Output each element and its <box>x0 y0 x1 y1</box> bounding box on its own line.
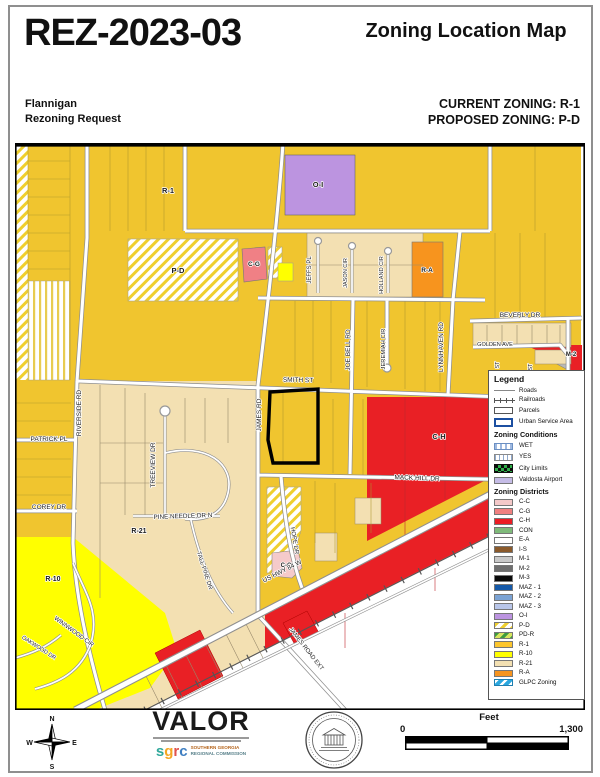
sgrc-logo-row: sgrc SOUTHERN GEORGIA REGIONAL COMMISSIO… <box>136 744 266 759</box>
map-label: R-10 <box>45 576 60 583</box>
legend-district-pd: P-D <box>494 622 582 629</box>
zoning-map-page: REZ-2023-03 Zoning Location Map Flanniga… <box>0 0 600 777</box>
map-label: JEFFS PL <box>307 256 313 284</box>
legend-item-parcels: Parcels <box>494 407 582 414</box>
legend-district-maz3: MAZ - 3 <box>494 603 582 610</box>
map-label: JAMES RD <box>256 398 263 431</box>
map-label: M-2 <box>566 352 577 358</box>
subject-parcel-outline <box>268 389 318 463</box>
map-label: JEREMIAH CIR <box>381 329 387 370</box>
proposed-zoning: PROPOSED ZONING: P-D <box>428 112 580 128</box>
legend-district-ch: C-H <box>494 518 582 525</box>
map-label: GOLDEN AVE <box>477 342 513 348</box>
map-label: PATRICK PL <box>31 436 68 443</box>
legend-district-cc: C-C <box>494 499 582 506</box>
legend-district-r21: R-21 <box>494 660 582 667</box>
applicant-block: Flannigan Rezoning Request <box>25 97 121 128</box>
map-label: RIVERSIDE RD <box>76 390 83 437</box>
legend: Legend Roads Railroads Parcels Urban Ser… <box>488 370 585 700</box>
map-label: COREY DR <box>32 504 66 511</box>
map-label: LYNNHAVEN RD <box>438 322 445 372</box>
map-label: R-A <box>421 267 433 274</box>
legend-district-pdr: PD-R <box>494 632 582 639</box>
current-zoning: CURRENT ZONING: R-1 <box>428 96 580 112</box>
legend-district-glpc: GLPC Zoning <box>494 679 582 686</box>
valor-logo: VALOR <box>136 708 266 735</box>
compass-w: W <box>26 740 33 747</box>
compass-s: S <box>50 764 55 771</box>
map-label: HOLLAND CIR <box>379 256 385 294</box>
legend-item-wet: WET <box>494 443 582 450</box>
legend-title: Legend <box>494 374 582 384</box>
legend-item-city-limits: City Limits <box>494 464 582 473</box>
legend-district-m3: M-3 <box>494 575 582 582</box>
city-limits-swatch <box>494 464 513 473</box>
sgrc-org-name: SOUTHERN GEORGIA REGIONAL COMMISSION <box>191 745 247 756</box>
legend-conditions-title: Zoning Conditions <box>494 430 582 439</box>
legend-district-maz1: MAZ - 1 <box>494 584 582 591</box>
page-title: Zoning Location Map <box>350 20 582 43</box>
legend-district-cg: C-G <box>494 508 582 515</box>
legend-district-r1: R-1 <box>494 641 582 648</box>
credits-block: VALOR sgrc SOUTHERN GEORGIA REGIONAL COM… <box>136 708 266 759</box>
map-label: P-D <box>172 266 186 275</box>
legend-district-m2: M-2 <box>494 565 582 572</box>
legend-district-ra: R-A <box>494 670 582 677</box>
railroad-line-symbol <box>494 398 515 403</box>
map-label: C-G <box>248 261 260 268</box>
map-label: SMITH ST <box>283 377 313 385</box>
urban-service-swatch <box>494 418 513 427</box>
valor-tagline <box>153 737 249 739</box>
legend-item-roads: Roads <box>494 388 582 394</box>
map-label: R-21 <box>131 528 146 535</box>
legend-item-valdosta-airport: Valdosta Airport <box>494 477 582 484</box>
airport-swatch <box>494 477 513 484</box>
scale-max: 1,300 <box>559 724 583 735</box>
case-number: REZ-2023-03 <box>24 12 241 55</box>
map-label: R-1 <box>162 186 174 195</box>
legend-districts-title: Zoning Districts <box>494 487 582 496</box>
legend-district-m1: M-1 <box>494 556 582 563</box>
map-label: O-I <box>313 180 323 189</box>
legend-district-ea: E-A <box>494 537 582 544</box>
map-label: JOE BELL RD <box>345 329 352 371</box>
map-label: C-H <box>432 432 445 441</box>
yes-swatch <box>494 454 513 461</box>
map-label: TREEVIEW DR <box>150 442 157 487</box>
request-type: Rezoning Request <box>25 112 121 127</box>
map-label: BEVERLY DR <box>500 312 541 319</box>
map-label: ST <box>495 361 501 369</box>
applicant-name: Flannigan <box>25 97 121 112</box>
legend-district-maz2: MAZ - 2 <box>494 594 582 601</box>
sgrc-logo: sgrc <box>156 744 188 759</box>
wet-swatch <box>494 443 513 450</box>
legend-district-is: I-S <box>494 546 582 553</box>
scale-bar: Feet 0 1,300 <box>395 712 583 750</box>
legend-district-con: CON <box>494 527 582 534</box>
roads-line-symbol <box>494 390 515 391</box>
scale-min: 0 <box>400 724 405 735</box>
legend-item-railroads: Railroads <box>494 397 582 403</box>
zoning-summary: CURRENT ZONING: R-1 PROPOSED ZONING: P-D <box>428 96 580 129</box>
compass-rose: N S E W <box>26 712 78 772</box>
compass-e: E <box>72 740 77 747</box>
legend-district-r10: R-10 <box>494 651 582 658</box>
compass-n: N <box>49 716 54 723</box>
scale-bar-graphic <box>405 736 569 750</box>
legend-item-yes: YES <box>494 454 582 461</box>
county-seal <box>303 709 365 771</box>
scale-units: Feet <box>395 712 583 723</box>
legend-item-urban-service-area: Urban Service Area <box>494 418 582 427</box>
map-label: JASON CIR <box>343 258 349 288</box>
legend-district-oi: O-I <box>494 613 582 620</box>
parcels-swatch <box>494 407 513 414</box>
